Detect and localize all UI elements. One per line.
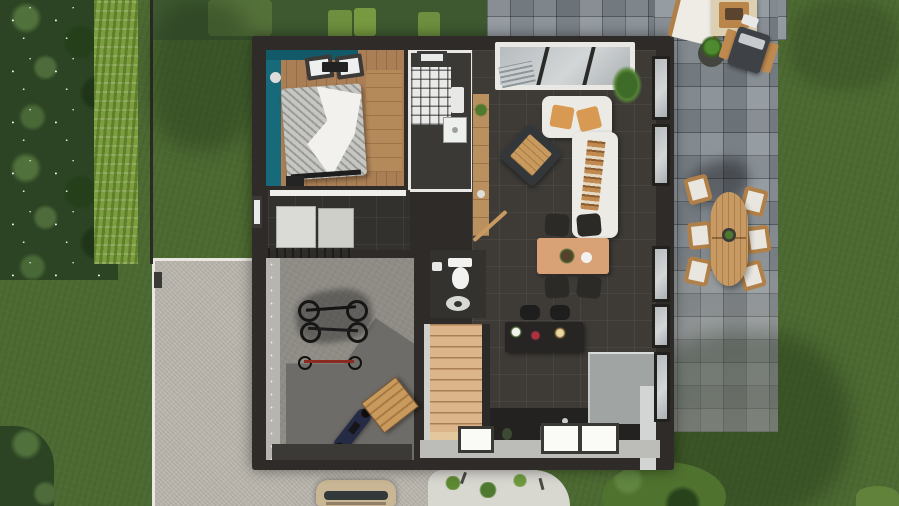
floorplan-render-scene: [0, 0, 899, 506]
garden-shrub: [418, 12, 440, 38]
chair-cushion: [744, 190, 764, 212]
wc-rug-center: [454, 301, 462, 307]
double-bed: [281, 83, 367, 180]
right-wall-window: [652, 124, 670, 186]
house-shell: [252, 36, 674, 470]
chair-cushion: [688, 261, 708, 283]
wc-sink: [432, 262, 442, 271]
car-roofline: [326, 502, 386, 505]
floor-lamp: [270, 72, 281, 83]
sideboard-vase: [477, 190, 485, 198]
sideboard-plant: [475, 102, 487, 118]
right-wall-window: [652, 246, 670, 302]
nightstand: [286, 176, 304, 186]
countertop-item: [502, 428, 512, 440]
right-wall-window: [652, 304, 670, 348]
outdoor-dining-table: [710, 192, 748, 286]
toilet-bowl: [452, 267, 469, 289]
staircase: [430, 324, 484, 432]
skylight: [579, 423, 619, 454]
flower-bed-plant: [478, 482, 498, 498]
wall-mounted-bike: [300, 320, 364, 342]
garden-shrub: [328, 10, 352, 38]
garage-left-wall: [266, 258, 280, 460]
utility-window-glass: [254, 200, 260, 224]
utility-room: [268, 190, 410, 250]
utility-window: [252, 196, 262, 228]
wall-mounted-bike-red: [298, 352, 360, 364]
bathroom-window-glass: [421, 54, 443, 61]
parked-car-roof: [316, 480, 396, 506]
roof-edge-gray: [420, 440, 660, 458]
sofa-cushion: [549, 104, 574, 129]
gate-post: [154, 272, 162, 288]
bar-stool: [550, 305, 570, 320]
garage: [266, 258, 414, 460]
dining-table: [537, 238, 609, 274]
shrub-corner: [856, 486, 899, 506]
chair-cushion: [749, 229, 767, 250]
window-glass: [655, 307, 667, 345]
island-flowers-white: [510, 326, 522, 338]
right-wall-window: [654, 352, 670, 422]
window-glass: [655, 249, 667, 299]
right-wall-window: [652, 56, 670, 120]
fireplace-logs: [725, 8, 743, 20]
garden-shrub: [354, 8, 376, 36]
tree-shadow-left-lawn: [150, 0, 255, 150]
wardrobe: [366, 70, 402, 172]
toilet-tank: [448, 258, 472, 267]
table-centerpiece-plant: [559, 248, 575, 264]
chair-cushion: [691, 225, 709, 246]
trimmed-hedge: [94, 0, 138, 264]
dryer: [318, 208, 354, 248]
master-bedroom: [266, 50, 404, 186]
outdoor-chair: [744, 224, 772, 254]
table-plant: [724, 230, 734, 240]
sideboard: [473, 94, 489, 236]
wc-rug: [446, 296, 470, 311]
indoor-plant: [612, 66, 642, 104]
bar-stool: [520, 305, 540, 320]
bedroom-teal-wall-left: [266, 50, 281, 186]
dresser-dark: [322, 62, 348, 72]
bed-duvet-white: [281, 83, 367, 180]
garage-door-mat: [272, 444, 412, 460]
bathroom-sink: [451, 87, 464, 113]
wall-mounted-bike: [298, 298, 362, 320]
bathroom-window: [417, 51, 447, 64]
wc-room: [430, 250, 486, 318]
mezzanine-railing: [268, 248, 354, 258]
dining-chair: [576, 213, 602, 237]
chair-cushion: [688, 178, 708, 200]
table-bowl: [581, 252, 592, 263]
window-glass: [657, 355, 667, 419]
island-flowers-red: [530, 330, 541, 341]
utility-ceiling-light: [270, 190, 406, 196]
skylight: [458, 426, 494, 453]
dining-chair: [544, 213, 569, 237]
washing-machine: [276, 206, 316, 248]
bathroom: [408, 50, 474, 192]
island-flowers-yellow: [554, 327, 566, 339]
shower-drain: [452, 127, 458, 133]
dining-chair: [576, 275, 602, 299]
flower-bed-plant: [512, 474, 528, 487]
tree-shadow-top-right: [790, 0, 899, 90]
skylight: [541, 423, 581, 454]
shower-tray: [443, 117, 467, 143]
window-glass: [655, 127, 667, 183]
car-windshield: [324, 491, 388, 500]
dining-chair: [544, 275, 569, 299]
window-glass: [655, 59, 667, 117]
